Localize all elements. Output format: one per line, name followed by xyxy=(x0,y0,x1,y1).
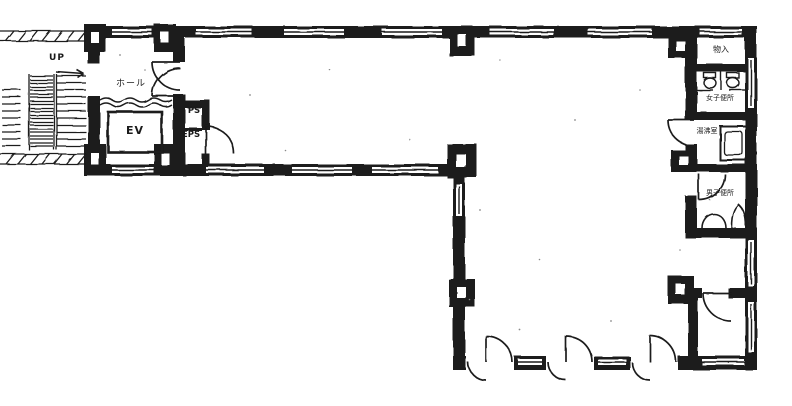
elevator-shutter xyxy=(100,98,172,107)
toilet-icon xyxy=(727,73,739,88)
sink-counter-icon xyxy=(720,126,746,160)
stairs xyxy=(2,74,86,150)
up-arrow-icon xyxy=(56,70,84,78)
door-swings xyxy=(152,62,731,380)
toilet-icon xyxy=(704,73,716,88)
storage-label: 物入 xyxy=(698,46,744,54)
stairs-up-label: UP xyxy=(40,54,74,63)
door-openings xyxy=(466,356,678,370)
kitchenette-door xyxy=(668,120,694,146)
pipe-shaft-label: PS xyxy=(184,107,204,116)
exterior-walls xyxy=(88,26,757,370)
elevator-label: EV xyxy=(108,125,162,136)
urinal-icon xyxy=(732,205,746,228)
windows xyxy=(112,29,754,365)
toilet-stalls xyxy=(697,72,745,90)
washbasin-icon xyxy=(702,214,726,228)
scan-speckles xyxy=(119,54,711,331)
hall-double-door xyxy=(152,62,180,96)
kitchenette-label: 湯沸室 xyxy=(693,128,721,135)
eps-door xyxy=(206,126,234,154)
bottom-right-room-door xyxy=(703,293,731,321)
hall-label: ホール xyxy=(102,80,160,89)
floor-plan-drawing xyxy=(0,0,792,406)
womens-toilet-label: 女子便所 xyxy=(694,95,746,102)
mens-toilet-label: 男子便所 xyxy=(694,190,746,197)
eps-shaft-label: EPS xyxy=(178,131,204,140)
floor-plan-canvas: UP ホール EV PS EPS 物入 女子便所 湯沸室 男子便所 xyxy=(0,0,792,406)
